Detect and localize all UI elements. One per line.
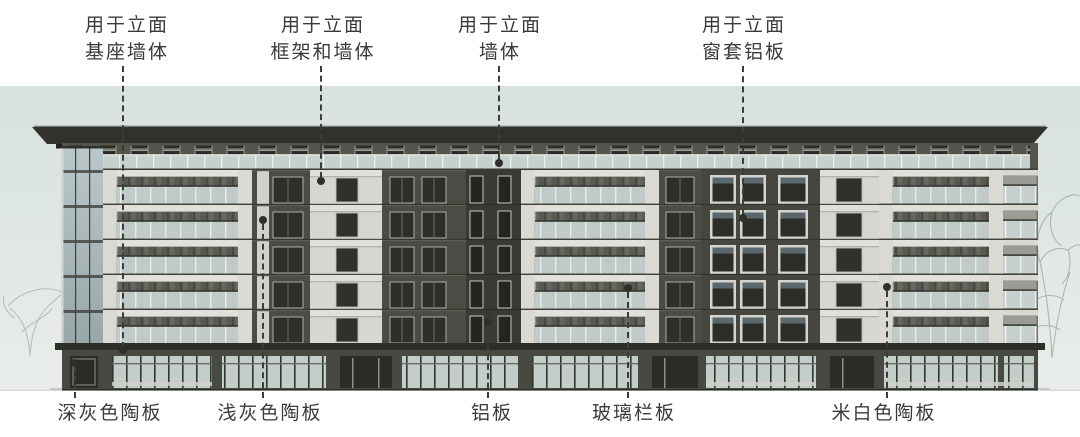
leader-dot-glass-balustrade [624, 284, 632, 292]
callout-text: 基座墙体 [85, 39, 169, 66]
callout-bottom-light-gray-ceramic: 浅灰色陶板 [217, 398, 322, 425]
leader-line-off-white-ceramic [886, 291, 888, 398]
callout-text: 用于立面 [270, 12, 375, 39]
leader-dot-base-wall [119, 346, 127, 354]
leader-dot-off-white-ceramic [883, 283, 891, 291]
callout-top-base-wall: 用于立面 基座墙体 [85, 12, 169, 66]
glass-corner [61, 146, 103, 345]
elevation-figure: 用于立面 基座墙体 用于立面 框架和墙体 用于立面 墙体 用于立面 窗套铝板 深… [0, 0, 1080, 437]
callout-top-frame-and-wall: 用于立面 框架和墙体 [270, 12, 375, 66]
leader-line-dark-gray-ceramic [74, 367, 76, 398]
callout-text: 米白色陶板 [831, 402, 936, 424]
callout-text: 用于立面 [458, 12, 542, 39]
leader-dot-window-trim-aluminum [739, 214, 747, 222]
callout-top-window-trim-aluminum: 用于立面 窗套铝板 [702, 12, 786, 66]
leader-line-wall [498, 66, 500, 160]
leader-line-aluminum-panel [487, 326, 489, 398]
callout-text: 用于立面 [702, 12, 786, 39]
leader-line-window-trim-aluminum [742, 66, 744, 215]
top-floor-band [62, 143, 1038, 170]
leader-line-glass-balustrade [627, 292, 629, 398]
leader-dot-light-gray-ceramic [259, 216, 267, 224]
leader-line-frame-and-wall [320, 66, 322, 178]
leader-dot-dark-gray-ceramic [71, 359, 79, 367]
callout-bottom-dark-gray-ceramic: 深灰色陶板 [57, 398, 162, 425]
callout-text: 墙体 [458, 39, 542, 66]
leader-line-base-wall [122, 66, 124, 348]
callout-text: 用于立面 [85, 12, 169, 39]
callout-bottom-off-white-ceramic: 米白色陶板 [831, 398, 936, 425]
callout-text: 浅灰色陶板 [217, 402, 322, 424]
callout-text: 铝板 [471, 402, 513, 424]
leader-dot-aluminum-panel [484, 318, 492, 326]
base-storey [55, 343, 1045, 391]
callout-bottom-glass-balustrade: 玻璃栏板 [592, 398, 676, 425]
leader-line-light-gray-ceramic [262, 224, 264, 398]
callout-text: 深灰色陶板 [57, 402, 162, 424]
leader-dot-frame-and-wall [317, 177, 325, 185]
callout-text: 框架和墙体 [270, 39, 375, 66]
callout-text: 窗套铝板 [702, 39, 786, 66]
callout-top-wall: 用于立面 墙体 [458, 12, 542, 66]
callout-text: 玻璃栏板 [592, 402, 676, 424]
leader-dot-wall [495, 159, 503, 167]
callout-bottom-aluminum-panel: 铝板 [471, 398, 513, 425]
facade-bays [103, 170, 1038, 345]
